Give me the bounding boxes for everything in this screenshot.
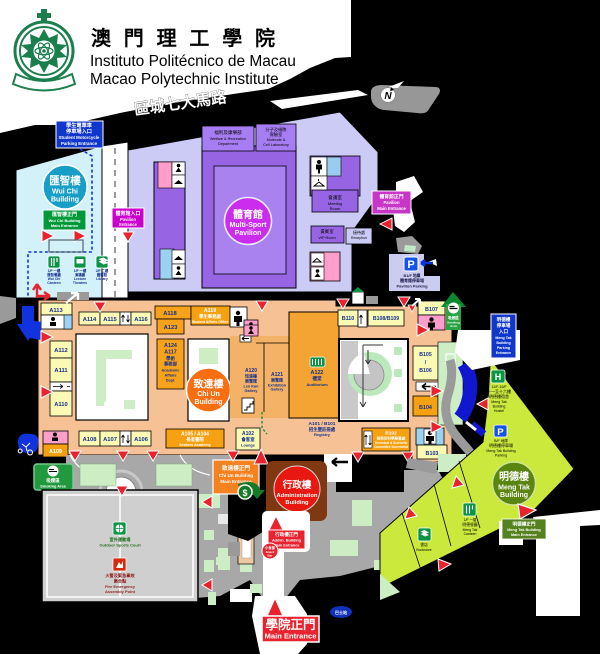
svg-text:A110: A110	[54, 402, 68, 408]
svg-text:Building: Building	[285, 500, 309, 506]
svg-text:Meng Tak: Meng Tak	[491, 400, 507, 404]
svg-text:體育館停車場: 體育館停車場	[400, 277, 424, 283]
svg-text:技術及科學秘書處: 技術及科學秘書處	[377, 436, 406, 441]
svg-text:Meng Tak Building: Meng Tak Building	[507, 528, 541, 532]
svg-text:B106: B106	[419, 368, 432, 374]
svg-text:Main Entrance: Main Entrance	[265, 632, 317, 641]
svg-text:Bar: Bar	[267, 554, 273, 558]
svg-text:Student Motorcycle: Student Motorcycle	[59, 135, 100, 140]
svg-text:Chi Un: Chi Un	[197, 391, 220, 398]
svg-text:Canteen: Canteen	[464, 532, 477, 536]
svg-text:體育館正門: 體育館正門	[380, 193, 404, 200]
svg-text:A114: A114	[83, 317, 97, 323]
svg-text:會議室: 會議室	[328, 194, 342, 201]
svg-text:1/F 一樓: 1/F 一樓	[464, 517, 477, 522]
svg-text:學院正門: 學院正門	[265, 617, 315, 632]
svg-text:展覽館: 展覽館	[244, 378, 257, 384]
svg-text:P: P	[497, 427, 504, 438]
svg-text:Entrance: Entrance	[496, 351, 511, 355]
svg-text:A107: A107	[103, 437, 117, 443]
svg-text:N: N	[384, 91, 392, 102]
svg-text:Administration: Administration	[277, 493, 318, 499]
svg-text:Entrance: Entrance	[119, 222, 138, 227]
svg-text:Affairs: Affairs	[164, 374, 176, 378]
svg-text:Lounge: Lounge	[241, 444, 255, 448]
svg-text:VIP Room: VIP Room	[318, 236, 335, 240]
svg-text:P: P	[407, 259, 414, 271]
svg-text:明德樓: 明德樓	[499, 470, 529, 483]
svg-text:Len Kan: Len Kan	[244, 385, 260, 389]
svg-text:Meng Tak: Meng Tak	[495, 336, 511, 340]
svg-text:Main Entrance: Main Entrance	[51, 223, 79, 228]
svg-text:Pavilion: Pavilion	[383, 200, 399, 205]
svg-text:Main Entrance: Main Entrance	[511, 533, 537, 537]
svg-text:Chi Un Building: Chi Un Building	[219, 473, 254, 478]
svg-text:Instituto Politécnico de Macau: Instituto Politécnico de Macau	[90, 53, 296, 70]
svg-text:Theatres: Theatres	[73, 281, 87, 285]
svg-text:Building: Building	[493, 405, 506, 409]
svg-text:Building: Building	[500, 492, 528, 499]
svg-text:明德樓宿舍: 明德樓宿舍	[489, 393, 509, 399]
svg-text:停車場入口: 停車場入口	[66, 127, 92, 135]
svg-text:學生電單車: 學生電單車	[66, 121, 93, 129]
svg-text:A118: A118	[163, 311, 177, 317]
svg-text:B110: B110	[342, 316, 355, 322]
svg-text:事務部: 事務部	[164, 361, 178, 368]
svg-text:書店: 書店	[420, 542, 428, 547]
svg-text:行政樓正門: 行政樓正門	[274, 531, 298, 538]
svg-text:Molecule &: Molecule &	[267, 138, 286, 142]
svg-text:澳門理工學院: 澳門理工學院	[91, 26, 288, 50]
svg-text:Parking: Parking	[495, 454, 507, 458]
svg-text:實驗室: 實驗室	[270, 131, 283, 138]
svg-text:Meng Tak Building: Meng Tak Building	[486, 449, 515, 453]
svg-text:Building: Building	[51, 197, 79, 204]
svg-text:吸煙區: 吸煙區	[448, 315, 459, 320]
svg-text:A123: A123	[164, 325, 179, 331]
svg-text:Smoking Area: Smoking Area	[40, 485, 66, 489]
svg-text:B104: B104	[419, 405, 432, 411]
svg-text:B108/B109: B108/B109	[373, 316, 399, 322]
svg-text:A116: A116	[134, 317, 148, 323]
svg-text:行政樓: 行政樓	[282, 479, 312, 491]
svg-text:Outdoor Sports Court: Outdoor Sports Court	[99, 543, 141, 548]
svg-text:$: $	[242, 488, 247, 498]
svg-text:展覽館: 展覽館	[270, 377, 283, 383]
svg-text:福利及康樂部: 福利及康樂部	[214, 129, 242, 136]
svg-text:Parking Entrance: Parking Entrance	[61, 141, 98, 146]
svg-text:明德樓正門: 明德樓正門	[513, 521, 536, 528]
svg-text:Meng Tak: Meng Tak	[498, 485, 530, 492]
svg-text:Pavilion: Pavilion	[235, 230, 262, 237]
svg-text:體育館入口: 體育館入口	[115, 210, 140, 217]
svg-text:A111: A111	[54, 368, 68, 374]
svg-text:Area: Area	[450, 324, 457, 328]
svg-text:Building: Building	[496, 341, 510, 345]
svg-text:B105: B105	[419, 352, 432, 358]
svg-text:Student Affairs Office: Student Affairs Office	[192, 320, 229, 324]
svg-text:Main Entrance: Main Entrance	[377, 206, 406, 211]
svg-text:Building: Building	[195, 399, 223, 406]
svg-text:Cell Laboratory: Cell Laboratory	[263, 143, 289, 147]
svg-text:致遠樓: 致遠樓	[194, 378, 224, 391]
svg-text:明德樓: 明德樓	[497, 316, 511, 323]
svg-text:明德樓停車場: 明德樓停車場	[489, 442, 513, 448]
svg-text:Committee Secretariat: Committee Secretariat	[374, 445, 409, 449]
svg-text:Parking: Parking	[497, 346, 510, 350]
svg-text:停車場: 停車場	[497, 322, 511, 329]
svg-text:A124: A124	[164, 343, 177, 349]
svg-text:體育館: 體育館	[233, 208, 263, 221]
svg-text:Canteen: Canteen	[47, 281, 60, 285]
svg-text:吸煙區: 吸煙區	[46, 477, 60, 484]
svg-text:Registry: Registry	[314, 432, 331, 437]
svg-text:Auditorium: Auditorium	[306, 382, 328, 387]
svg-text:Assembly Point: Assembly Point	[105, 589, 136, 594]
svg-text:Academic: Academic	[162, 369, 180, 373]
svg-text:Seniors Academy: Seniors Academy	[179, 443, 212, 447]
svg-text:Wui Chi: Wui Chi	[52, 189, 78, 196]
svg-text:長者書院: 長者書院	[186, 436, 204, 443]
svg-text:A106: A106	[134, 437, 149, 443]
svg-text:Admin. Building: Admin. Building	[272, 539, 302, 543]
svg-text:禮堂: 禮堂	[312, 375, 322, 382]
svg-text:Gallery: Gallery	[271, 388, 285, 392]
svg-text:B107: B107	[425, 307, 438, 313]
svg-text:匯智樓: 匯智樓	[49, 174, 81, 187]
svg-text:Bookstore: Bookstore	[416, 548, 431, 552]
svg-text:Library: Library	[96, 277, 108, 281]
svg-text:Welfare & Recreation: Welfare & Recreation	[210, 137, 246, 141]
svg-text:匯智樓正門: 匯智樓正門	[52, 211, 77, 218]
svg-text:接待處: 接待處	[353, 229, 365, 235]
svg-text:Multi-Sport: Multi-Sport	[230, 222, 268, 229]
svg-text:Dept.: Dept.	[166, 379, 176, 383]
svg-text:巴士站: 巴士站	[335, 609, 347, 615]
svg-text:Department: Department	[218, 142, 239, 146]
svg-text:Reception: Reception	[351, 236, 367, 240]
svg-text:B103: B103	[426, 451, 439, 457]
svg-text:會客室: 會客室	[241, 436, 255, 443]
svg-text:學生事務處: 學生事務處	[199, 313, 222, 320]
svg-text:Macao Polytechnic Institute: Macao Polytechnic Institute	[90, 71, 279, 88]
svg-text:A109: A109	[49, 449, 62, 455]
svg-text:A117: A117	[164, 350, 177, 356]
svg-text:致遠樓正門: 致遠樓正門	[222, 464, 250, 472]
svg-text:Pavilion Parking: Pavilion Parking	[396, 284, 428, 289]
svg-text:A108: A108	[83, 437, 98, 443]
svg-text:A112: A112	[54, 348, 68, 354]
svg-text:貴賓室: 貴賓室	[320, 228, 334, 235]
svg-text:Gallery: Gallery	[245, 389, 259, 393]
svg-text:A113: A113	[49, 308, 63, 314]
svg-text:A115: A115	[103, 317, 117, 323]
svg-text:Hostel: Hostel	[494, 409, 504, 413]
svg-text:H: H	[495, 372, 502, 382]
svg-text:明德餐廳: 明德餐廳	[462, 522, 477, 527]
svg-text:Room: Room	[330, 206, 341, 211]
